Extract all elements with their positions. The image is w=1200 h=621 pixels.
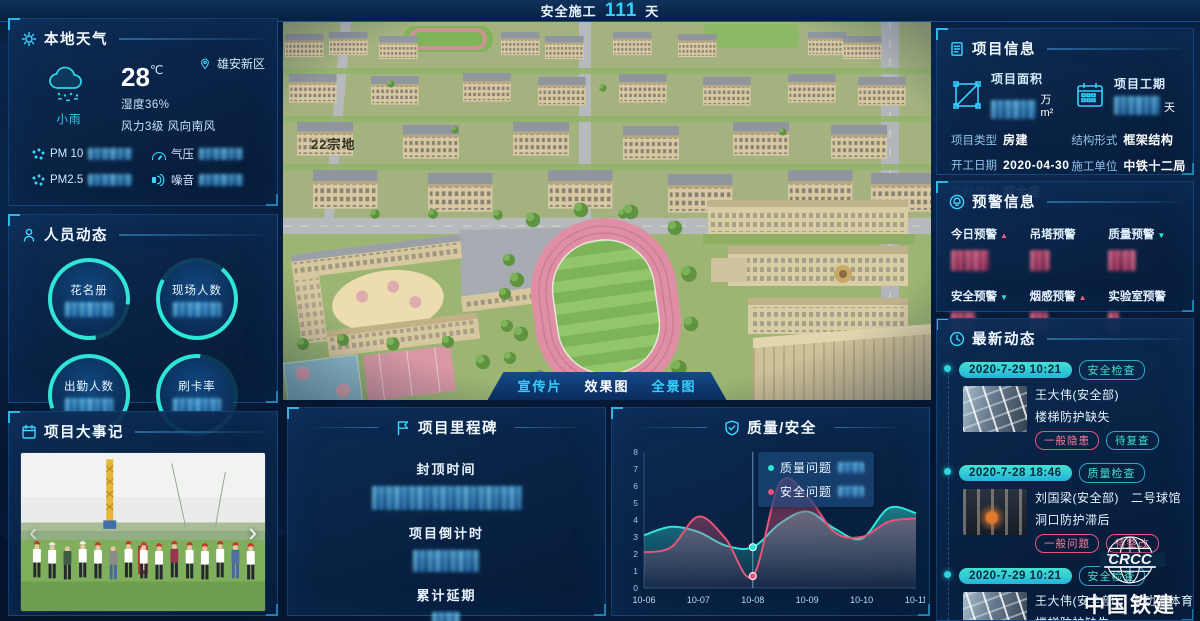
alert-label: 烟感预警 [1030, 291, 1087, 303]
news-timeline: 2020-7-29 10:21 安全检查 王大伟(安全部) 楼梯防护缺失 [937, 354, 1193, 621]
panel-title: 最新动态 [972, 328, 1036, 349]
legend-label: 安全问题 [780, 483, 832, 500]
alerts-panel: 预警信息 今日预警 吊塔预警 质量预警 [936, 181, 1194, 312]
latest-news-panel: 最新动态 2020-7-29 10:21 安全检查 王大伟(安全部) [936, 318, 1194, 621]
alerts-grid: 今日预警 吊塔预警 质量预警 安全预警 [937, 217, 1193, 333]
site-render-viewport: 22宗地 宣传片 效果图 全景图 [283, 22, 931, 400]
alert-count-redacted [951, 250, 989, 271]
flag-icon [395, 420, 411, 436]
severity-tag: 一般隐患 [1035, 431, 1099, 450]
entry-type-badge: 安全检查 [1079, 566, 1145, 586]
legend-label: 质量问题 [780, 459, 832, 476]
panel-title: 本地天气 [44, 28, 108, 49]
svg-text:10-10: 10-10 [850, 595, 873, 605]
milestone-label: 项目倒计时 [409, 523, 484, 542]
entry-type-badge: 质量检查 [1079, 463, 1145, 483]
region-selector[interactable]: 雄安新区 [197, 55, 265, 72]
svg-text:1: 1 [633, 566, 638, 576]
entry-location: 多功能体育馆 [1131, 592, 1194, 609]
stat-ring: 现场人数 [156, 258, 238, 340]
stat-value-redacted [173, 302, 221, 317]
stat-label: 现场人数 [172, 282, 222, 298]
wind: 风力3级 风向南风 [121, 118, 263, 134]
inspection-photo [963, 386, 1027, 432]
entry-date: 2020-7-29 10:21 [959, 362, 1072, 378]
calendar-days-icon [1074, 79, 1106, 111]
inspector-name: 刘国梁(安全部) [1035, 489, 1119, 506]
issue-description: 洞口防护滞后 [1035, 511, 1185, 528]
weather-metric: 噪音 [152, 172, 267, 188]
svg-text:8: 8 [633, 447, 638, 457]
personnel-stats: 花名册 现场人数 出勤人数 [9, 250, 277, 436]
entry-date: 2020-7-29 10:21 [959, 568, 1072, 584]
carousel-next-button[interactable]: › [248, 519, 257, 545]
info-value: 中铁十二局 [1123, 157, 1186, 174]
legend-dot [768, 489, 774, 495]
alarm-bell-icon [949, 194, 965, 210]
metric-value-redacted [199, 148, 243, 160]
svg-text:10-06: 10-06 [632, 595, 655, 605]
milestone-value-redacted [372, 486, 522, 510]
alert-count-redacted [1108, 250, 1136, 271]
inspection-photo [963, 592, 1027, 621]
area-unit: 万m² [1040, 91, 1064, 119]
site-aerial-render [283, 22, 931, 400]
weather-condition: 小雨 [27, 111, 111, 127]
construction-dashboard: 安全施工 111 天 [0, 0, 1200, 621]
events-panel: 项目大事记 ‹ › [8, 411, 278, 616]
stat-label: 花名册 [70, 282, 108, 298]
svg-text:3: 3 [633, 532, 638, 542]
info-row: 施工单位 中铁十二局 [1071, 157, 1186, 174]
panel-title: 预警信息 [972, 191, 1036, 212]
svg-text:0: 0 [633, 583, 638, 593]
svg-text:10-09: 10-09 [796, 595, 819, 605]
legend-dot [768, 465, 774, 471]
status-tag: 待复查 [1106, 431, 1159, 450]
alert-label: 实验室预警 [1108, 291, 1166, 303]
calendar-icon [21, 424, 37, 440]
rain-cloud-icon [46, 64, 92, 104]
panel-title: 项目信息 [972, 38, 1036, 59]
personnel-panel: 人员动态 花名册 现场人数 [8, 214, 278, 403]
metric-label: 噪音 [171, 172, 194, 188]
shield-check-icon [724, 420, 740, 436]
view-mode-button[interactable]: 全景图 [652, 376, 697, 395]
project-info-panel: 项目信息 项目面积 万m² [936, 28, 1194, 175]
safety-days-count: 111 [605, 0, 638, 22]
news-entry[interactable]: 2020-7-29 10:21 安全检查 王大伟(安全部) 楼梯防护缺失 [959, 360, 1185, 450]
svg-text:10-07: 10-07 [687, 595, 710, 605]
milestone-item: 累计延期 [416, 585, 476, 621]
safety-days-prefix: 安全施工 [541, 1, 597, 20]
alert-label: 安全预警 [951, 291, 1008, 303]
severity-tag: 一般问题 [1035, 534, 1099, 553]
svg-text:10-11: 10-11 [905, 595, 925, 605]
svg-text:7: 7 [633, 464, 638, 474]
milestone-item: 封顶时间 [372, 459, 522, 510]
alert-item: 今日预警 [951, 225, 1030, 271]
metric-value-redacted [199, 174, 243, 186]
humidity: 湿度36% [121, 96, 263, 112]
weather-metric: PM2.5 [31, 172, 146, 188]
legend-row: 质量问题 [768, 459, 864, 476]
duration-value-redacted [1114, 96, 1160, 115]
info-value: 房建 [1003, 131, 1028, 148]
inspector-name: 王大伟(安全部) [1035, 386, 1119, 403]
info-row: 结构形式 框架结构 [1071, 131, 1186, 148]
sun-icon [21, 31, 37, 47]
info-value: 2020-04-30 [1003, 158, 1069, 172]
panel-title: 人员动态 [44, 224, 108, 245]
milestone-ceremony-photo [21, 453, 265, 611]
milestone-value-redacted [413, 550, 479, 572]
project-duration-card: 项目工期 天 [1074, 70, 1187, 119]
svg-text:6: 6 [633, 481, 638, 491]
inspection-photo [963, 489, 1027, 535]
issue-description: 楼梯防护缺失 [1035, 614, 1185, 621]
clock-icon [949, 331, 965, 347]
view-mode-button[interactable]: 效果图 [584, 376, 629, 395]
legend-value-redacted [838, 462, 864, 473]
quality-safety-panel: 质量/安全 01234567810-0610-0710-0810-0910-10… [611, 407, 930, 616]
svg-text:5: 5 [633, 498, 638, 508]
weather-metric: PM 10 [31, 146, 146, 162]
location-pin-icon [197, 58, 213, 70]
weather-metric: 气压 [152, 146, 267, 162]
stat-label: 出勤人数 [64, 378, 114, 394]
alert-count-redacted [1030, 250, 1050, 271]
info-label: 结构形式 [1071, 132, 1117, 148]
info-label: 项目类型 [951, 132, 997, 148]
panel-title: 质量/安全 [747, 417, 817, 438]
entry-location: 二号球馆 [1131, 489, 1181, 506]
news-entry[interactable]: 2020-7-28 18:46 质量检查 刘国梁(安全部) 二号球馆 洞口防护滞… [959, 463, 1185, 553]
document-icon [949, 41, 965, 57]
svg-text:10-08: 10-08 [741, 595, 764, 605]
legend-row: 安全问题 [768, 483, 864, 500]
metric-value-redacted [88, 174, 132, 186]
milestone-label: 累计延期 [416, 585, 476, 604]
inspector-name: 王大伟(安全部) [1035, 592, 1119, 609]
alert-item: 质量预警 [1108, 225, 1187, 271]
milestone-list: 封顶时间 项目倒计时 累计延期 [288, 438, 605, 621]
svg-text:2: 2 [633, 549, 638, 559]
alert-label: 吊塔预警 [1030, 229, 1076, 241]
project-area-card: 项目面积 万m² [951, 70, 1064, 119]
milestone-value-redacted [432, 612, 460, 621]
stat-value-redacted [65, 302, 113, 317]
milestone-item: 项目倒计时 [409, 523, 484, 572]
alert-item: 吊塔预警 [1030, 225, 1109, 271]
info-label: 施工单位 [1071, 158, 1117, 174]
info-row: 开工日期 2020-04-30 [951, 157, 1069, 174]
panel-title: 项目大事记 [44, 421, 124, 442]
duration-label: 项目工期 [1114, 75, 1175, 92]
weather-panel: 本地天气 雄安新区 小雨 28℃ 湿度36% 风力3级 风向南风 [8, 18, 278, 206]
stat-label: 刷卡率 [178, 378, 216, 394]
metric-label: PM 10 [50, 148, 83, 160]
info-value: 框架结构 [1123, 131, 1173, 148]
area-value-redacted [991, 100, 1036, 119]
legend-value-redacted [838, 486, 864, 497]
duration-unit: 天 [1164, 99, 1175, 115]
safety-days-suffix: 天 [645, 1, 659, 20]
info-row: 项目类型 房建 [951, 131, 1069, 148]
alert-label: 质量预警 [1108, 229, 1165, 241]
alert-label: 今日预警 [951, 229, 1008, 241]
info-label: 开工日期 [951, 157, 997, 173]
chart-tooltip: 质量问题 安全问题 [758, 452, 874, 507]
weather-metrics: PM 10 气压 PM2.5 噪音 [9, 134, 277, 188]
event-photo-carousel[interactable]: ‹ › [21, 453, 265, 611]
metric-label: PM2.5 [50, 174, 83, 186]
svg-text:4: 4 [633, 515, 638, 525]
entry-type-badge: 安全检查 [1079, 360, 1145, 380]
status-tag: 待整改 [1106, 534, 1159, 553]
stat-ring: 花名册 [48, 258, 130, 340]
metric-label: 气压 [171, 146, 194, 162]
person-icon [21, 227, 37, 243]
milestone-label: 封顶时间 [416, 459, 476, 478]
metric-icon [31, 147, 45, 161]
metric-icon [152, 152, 166, 160]
issue-description: 楼梯防护缺失 [1035, 408, 1185, 425]
metric-icon [31, 173, 45, 187]
news-entry[interactable]: 2020-7-29 10:21 安全检查 王大伟(安全部) 多功能体育馆 楼梯防… [959, 566, 1185, 621]
view-mode-button[interactable]: 宣传片 [517, 376, 562, 395]
render-view-switcher: 宣传片 效果图 全景图 [487, 372, 726, 400]
milestone-panel: 项目里程碑 封顶时间 项目倒计时 累计延期 [287, 407, 606, 616]
metric-icon [152, 173, 166, 187]
entry-date: 2020-7-28 18:46 [959, 465, 1072, 481]
area-icon [951, 79, 983, 111]
panel-title: 项目里程碑 [418, 417, 498, 438]
metric-value-redacted [88, 148, 132, 160]
land-parcel-label: 22宗地 [311, 134, 355, 153]
region-name: 雄安新区 [217, 55, 265, 72]
area-label: 项目面积 [991, 70, 1064, 87]
carousel-prev-button[interactable]: ‹ [29, 519, 38, 545]
